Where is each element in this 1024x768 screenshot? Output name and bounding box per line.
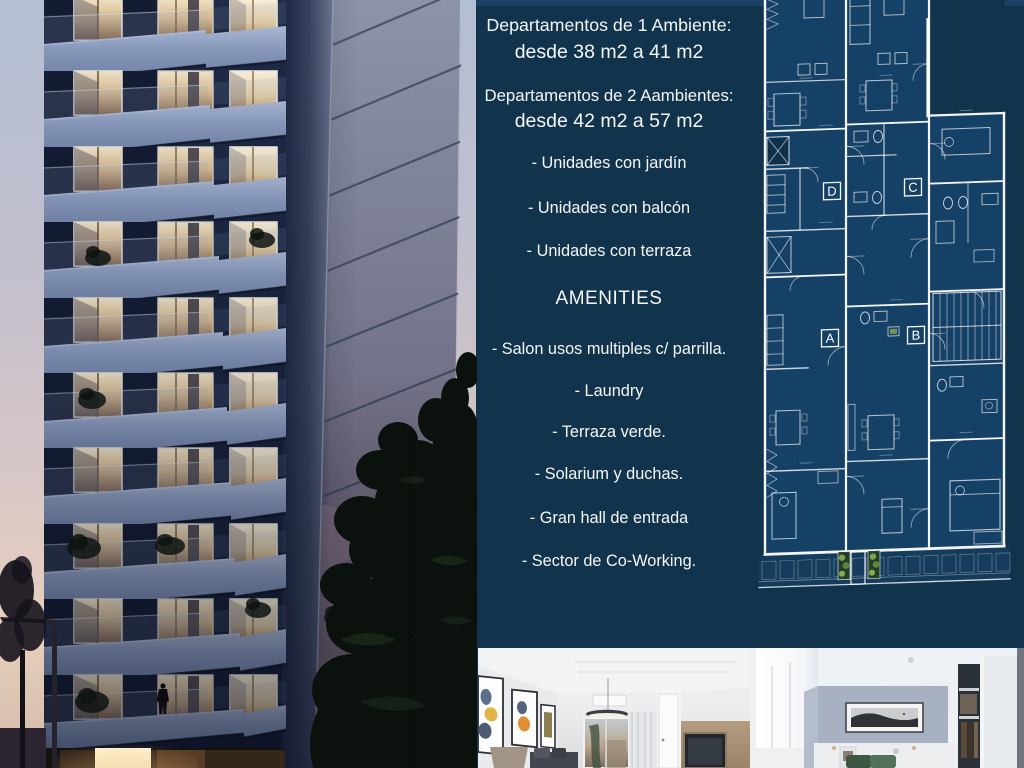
svg-text:B: B [912,327,921,342]
svg-text:A: A [826,330,835,345]
svg-text:C: C [908,180,917,195]
svg-text:D: D [827,183,836,198]
